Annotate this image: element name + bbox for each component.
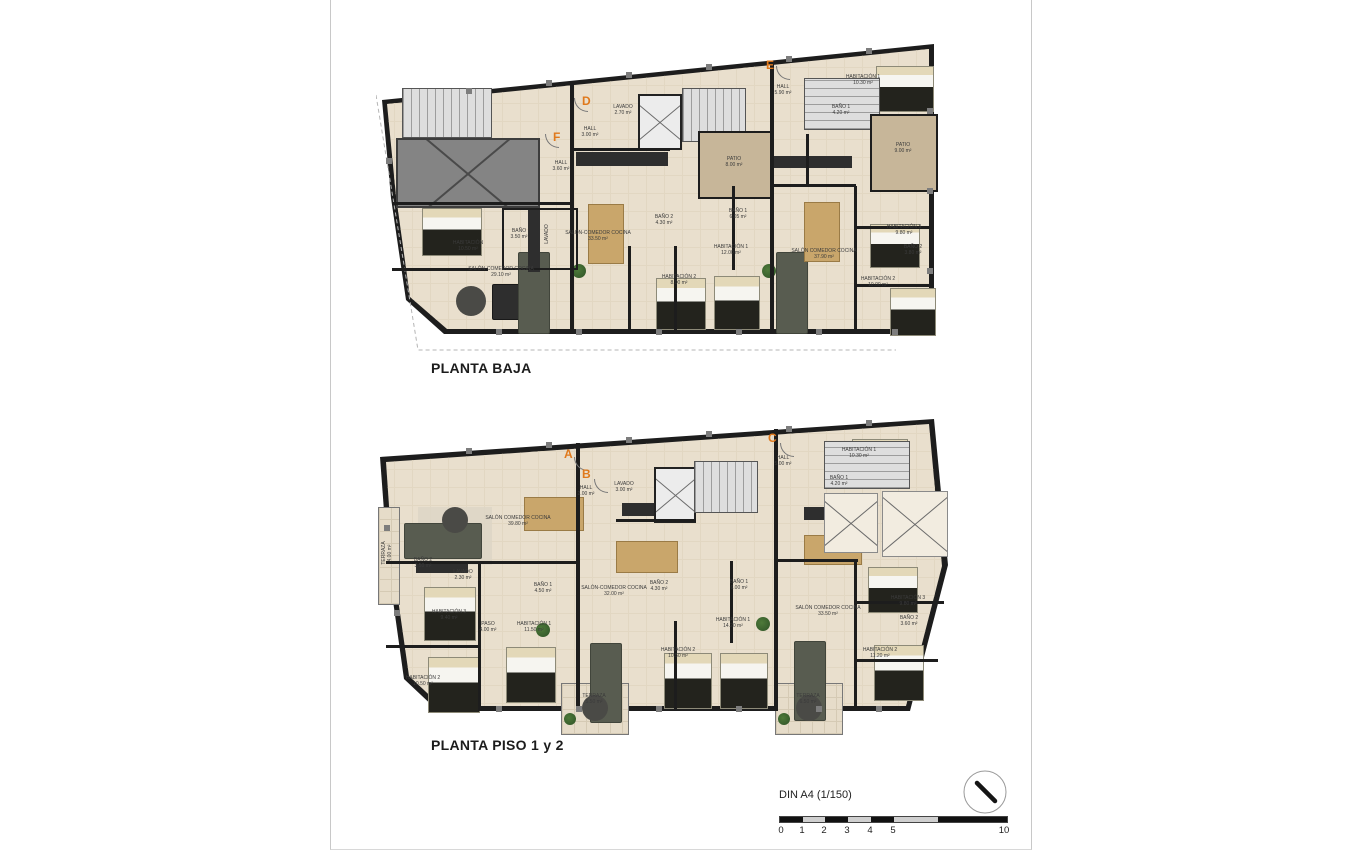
pillar: [736, 706, 742, 712]
pillar: [546, 80, 552, 86]
room-label: BAÑO 16.05 m²: [729, 208, 747, 220]
unit-letter-e: E: [766, 58, 774, 72]
wall-segment: [774, 184, 856, 187]
plan-title-baja: PLANTA BAJA: [431, 360, 532, 376]
wall-segment: [574, 148, 670, 151]
wall-segment: [732, 186, 735, 270]
pillar: [736, 329, 742, 335]
room-label: HABITACIÓN 39.80 m²: [887, 224, 921, 236]
scale-tick: 3: [844, 825, 849, 836]
room-label: HABITACIÓN 210.50 m²: [661, 647, 695, 659]
wall-segment: [806, 134, 809, 186]
pillar: [816, 329, 822, 335]
scale-ticks: 0 1 2 3 4 5 10: [779, 825, 1006, 837]
room-label: BAÑO 23.60 m²: [900, 615, 918, 627]
pillar: [496, 706, 502, 712]
room-label: PATIO9.00 m²: [895, 142, 912, 154]
room-label: SALÓN COMEDOR COCINA37.90 m²: [791, 248, 856, 260]
room-label: HABITACIÓN 112.00 m²: [714, 244, 748, 256]
pillar: [384, 525, 390, 531]
wall-segment: [392, 202, 572, 205]
room-label: TERRAZA6.50 m²: [796, 693, 819, 705]
pillar: [876, 706, 882, 712]
wall-segment: [770, 61, 774, 334]
room-label: TERRAZA5.50 m²: [582, 693, 605, 705]
wall-segment: [854, 561, 857, 711]
room-label: HABITACIÓN 210.00 m²: [861, 276, 895, 288]
plant: [778, 713, 790, 725]
unit-letter-c: C: [768, 431, 777, 445]
plant: [756, 617, 770, 631]
floor-plan-planta-baja: D F E HABITACIÓN10.50 m² BAÑO3.50 m² LAV…: [376, 38, 936, 356]
scale-tick: 5: [890, 825, 895, 836]
room-label: HALL5.90 m²: [775, 84, 792, 96]
unit-letter-d: D: [582, 94, 591, 108]
room-label: TERRAZA4.00 m²: [381, 541, 393, 564]
wall-segment: [616, 519, 696, 522]
room-label: BAÑO 23.80 m²: [904, 244, 922, 256]
scale-bar-segment: [871, 817, 894, 822]
roof-hatch: [396, 138, 540, 208]
wall-segment: [570, 81, 574, 334]
room-label: BAÑO 24.30 m²: [655, 214, 673, 226]
kitchen-counter: [576, 152, 668, 166]
kitchen-counter: [774, 156, 852, 168]
room-label: HALL3.60 m²: [553, 160, 570, 172]
pillar: [706, 431, 712, 437]
pillar: [927, 108, 933, 114]
room-label: BAÑO3.50 m²: [511, 228, 528, 240]
room-label: LAVADO2.30 m²: [453, 569, 473, 581]
bed: [714, 276, 760, 330]
pillar: [626, 437, 632, 443]
pillar: [466, 88, 472, 94]
pillar: [386, 158, 392, 164]
pillar: [927, 268, 933, 274]
page: { "document": { "scale_label": "DIN A4 (…: [0, 0, 1360, 850]
room-label: HABITACIÓN10.50 m²: [453, 240, 483, 252]
pillar: [866, 48, 872, 54]
room-label: BAÑO 14.20 m²: [830, 475, 848, 487]
lightwell: [882, 491, 948, 557]
room-label: LAVADO: [544, 224, 550, 244]
pillar: [892, 329, 898, 335]
room-label: HABITACIÓN 111.50 m²: [517, 621, 551, 633]
bed: [876, 66, 934, 112]
room-label: BAÑO 14.50 m²: [534, 582, 552, 594]
room-label: SALÓN COMEDOR COCINA33.50 m²: [795, 605, 860, 617]
scale-tick: 2: [821, 825, 826, 836]
scale-label: DIN A4 (1/150): [779, 789, 852, 801]
elevator-shaft: [654, 467, 696, 523]
wall-segment: [854, 186, 857, 334]
wall-segment: [774, 429, 778, 711]
room-label: LAVADO3.00 m²: [614, 481, 634, 493]
pillar: [706, 64, 712, 70]
pillar: [866, 420, 872, 426]
room-label: HALL5.00 m²: [775, 455, 792, 467]
bed: [720, 653, 768, 709]
lightwell: [824, 493, 878, 553]
room-label: HABITACIÓN 110.30 m²: [842, 447, 876, 459]
north-indicator-icon: [953, 760, 1017, 824]
drawing-sheet: D F E HABITACIÓN10.50 m² BAÑO3.50 m² LAV…: [330, 0, 1032, 850]
scale-tick: 10: [999, 825, 1010, 836]
scale-tick: 1: [799, 825, 804, 836]
scale-tick: 0: [778, 825, 783, 836]
scale-bar-segment: [780, 817, 803, 822]
wall-segment: [730, 561, 733, 643]
wall-segment: [854, 659, 938, 662]
elevator-shaft: [638, 94, 682, 150]
staircase: [694, 461, 758, 513]
room-label: HABITACIÓN 39.80 m²: [891, 595, 925, 607]
room-label: HABITACIÓN 39.40 m²: [432, 609, 466, 621]
room-label: PATIO8.00 m²: [726, 156, 743, 168]
wall-segment: [386, 645, 481, 648]
wall-segment: [628, 246, 631, 334]
round-table: [442, 507, 468, 533]
plant: [564, 713, 576, 725]
pillar: [546, 442, 552, 448]
wall-segment: [778, 559, 858, 562]
room-label: SALÓN-COMEDOR COCINA32.00 m²: [581, 585, 647, 597]
staircase: [402, 88, 492, 138]
room-label: HABITACIÓN 110.30 m²: [846, 74, 880, 86]
room-label: LAVADO2.70 m²: [613, 104, 633, 116]
pillar: [816, 706, 822, 712]
room-label: HALL3.00 m²: [582, 126, 599, 138]
sofa: [776, 252, 808, 334]
pillar: [626, 72, 632, 78]
pillar: [466, 448, 472, 454]
sofa: [404, 523, 482, 559]
wall-segment: [674, 621, 677, 711]
pillar: [786, 56, 792, 62]
plan-title-piso: PLANTA PISO 1 y 2: [431, 737, 564, 753]
room-label: SALÓN COMEDOR COCINA39.80 m²: [485, 515, 550, 527]
room-label: BAÑO 23.50 m²: [414, 557, 432, 569]
room-label: BAÑO 24.30 m²: [650, 580, 668, 592]
room-label: HABITACIÓN 211.20 m²: [863, 647, 897, 659]
unit-letter-b: B: [582, 467, 591, 481]
unit-letter-f: F: [553, 130, 560, 144]
room-label: HABITACIÓN 28.00 m²: [662, 274, 696, 286]
pillar: [786, 426, 792, 432]
scale-bar-segment: [825, 817, 848, 822]
room-label: BAÑO 16.00 m²: [730, 579, 748, 591]
bed: [664, 653, 712, 709]
room-label: BAÑO 14.20 m²: [832, 104, 850, 116]
floor-plan-planta-piso: A B C TERRAZA4.00 m² SALÓN COMEDOR COCIN…: [376, 415, 951, 740]
room-label: HABITACIÓN 210.50 m²: [406, 675, 440, 687]
round-table: [456, 286, 486, 316]
scale-tick: 4: [867, 825, 872, 836]
room-label: HABITACIÓN 114.20 m²: [716, 617, 750, 629]
pillar: [576, 329, 582, 335]
wall-segment: [478, 561, 481, 711]
wall-segment: [674, 246, 677, 334]
pillar: [927, 188, 933, 194]
room-label: HALL2.00 m²: [578, 485, 595, 497]
room-label: SALÓN-COMEDOR COCINA29.10 m²: [468, 266, 534, 278]
pillar: [394, 610, 400, 616]
room-label: SALÓN-COMEDOR COCINA33.50 m²: [565, 230, 631, 242]
pillar: [576, 706, 582, 712]
wall-segment: [576, 443, 580, 711]
room-label: PASO4.00 m²: [480, 621, 497, 633]
dining-table: [616, 541, 678, 573]
bed: [506, 647, 556, 703]
unit-letter-a: A: [564, 447, 573, 461]
pillar: [656, 329, 662, 335]
pillar: [656, 706, 662, 712]
pillar: [496, 329, 502, 335]
